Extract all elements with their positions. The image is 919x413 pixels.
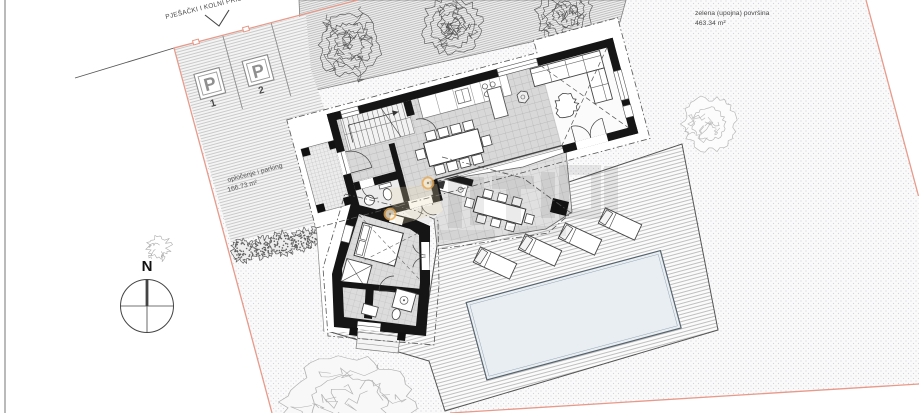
svg-text:463.34 m²: 463.34 m² — [695, 20, 726, 27]
svg-text:N: N — [142, 258, 153, 275]
svg-text:zelena (upojna) površina: zelena (upojna) površina — [695, 10, 770, 17]
